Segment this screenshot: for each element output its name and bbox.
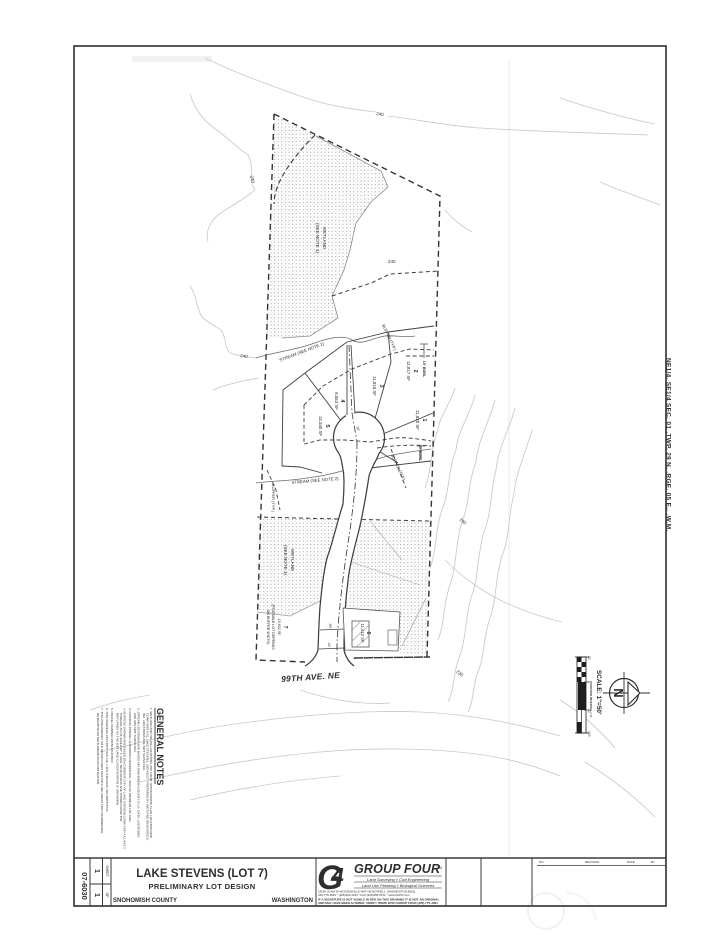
svg-text:ARE ARE NOT SURVEYED.: ARE ARE NOT SURVEYED. [133,713,137,753]
svg-text:50': 50' [328,624,332,629]
svg-text:5: 5 [324,424,330,427]
svg-text:(POSSIBLE LOT DEPENDS: (POSSIBLE LOT DEPENDS [271,604,275,650]
svg-text:7: 7 [282,626,288,629]
svg-text:WETLAND: WETLAND [322,227,327,250]
svg-text:SHEET: SHEET [105,865,109,876]
svg-text:6. SITE ADDRESS 2424 99TH AV: 6. SITE ADDRESS 2424 99TH AVE. NE, LAKE … [105,708,109,812]
svg-text:24': 24' [327,643,331,648]
svg-text:14,340 SF: 14,340 SF [318,416,323,437]
svg-text:1: 1 [421,418,427,421]
svg-text:N: N [611,688,626,697]
svg-text:4: 4 [330,863,344,889]
svg-text:1: 1 [93,869,100,873]
svg-text:(SEE NOTE 1): (SEE NOTE 1) [315,223,320,254]
svg-text:Land Use Planning ◊ Biol: Land Use Planning ◊ Biological Sciences [362,883,434,888]
svg-text:425-775-4581 * (206)362-4244: 425-775-4581 * (206)362-4244 * FAX:(206)… [318,893,410,897]
svg-text:OF: OF [105,893,109,898]
svg-text:2: 2 [412,369,418,372]
svg-text:5. PARCEL NUMBER 28050300403: 5. PARCEL NUMBER 28050300403500 [110,708,114,763]
svg-text:240: 240 [388,259,396,264]
svg-text:AND MAY HAVE BEEN ALTERED. VER: AND MAY HAVE BEEN ALTERED. VERIFY ITEMS … [318,901,438,905]
svg-text:3: 3 [378,384,384,387]
svg-text:GROUP FOUR: GROUP FOUR [354,862,440,876]
svg-text:PRELIMINARY LOT DESIGN: PRELIMINARY LOT DESIGN [148,882,255,891]
svg-text:11,820 SF: 11,820 SF [415,410,420,430]
svg-text:WETLANDS AS THE WETLAND CLASSI: WETLANDS AS THE WETLAND CLASSIFICATION I… [115,713,119,806]
svg-text:10' BDBL: 10' BDBL [418,445,422,462]
svg-text:SCALE: 1"=50': SCALE: 1"=50' [595,670,602,715]
svg-text:TM: TM [437,866,442,870]
svg-text:8,553 SF: 8,553 SF [334,392,339,410]
svg-text:SNOHOMISH COUNTY: SNOHOMISH COUNTY [113,898,177,904]
svg-text:WETLAND: WETLAND [290,549,295,572]
svg-text:WASHINGTON: WASHINGTON [272,898,313,904]
svg-text:BUFFER (TYP.): BUFFER (TYP.) [271,484,276,513]
svg-text:CONTOUR INTERVAL = 2': CONTOUR INTERVAL = 2' [589,681,593,718]
svg-text:GENERAL NOTES: GENERAL NOTES [155,708,165,785]
svg-text:11,412 SF: 11,412 SF [360,623,365,642]
svg-text:BY: BY [651,860,655,864]
svg-text:INC. LOCATIONS ARE NOT SURVEY: INC. LOCATIONS ARE NOT SURVEYED. [142,713,146,771]
svg-text:ON BUFFER WIDTH): ON BUFFER WIDTH) [266,610,270,645]
svg-text:50: 50 [587,656,591,660]
svg-text:DETENTION OR WETLAND/BUFFER MI: DETENTION OR WETLAND/BUFFER MITIGATION. [96,713,100,785]
svg-text:11,817 SF: 11,817 SF [406,361,411,381]
svg-text:10' BDBL: 10' BDBL [422,361,426,378]
svg-text:1: 1 [93,893,100,897]
svg-text:15,632 SF: 15,632 SF [277,619,281,636]
svg-text:DATE: DATE [627,860,635,864]
svg-text:Land Surveying ◊ Civil E: Land Surveying ◊ Civil Engineering [367,877,430,882]
svg-text:100: 100 [587,731,591,737]
svg-text:NO.: NO. [539,860,545,864]
svg-text:LAKE STEVENS (LOT 7): LAKE STEVENS (LOT 7) [136,868,268,880]
svg-text:11,815 SF: 11,815 SF [372,376,377,396]
svg-text:(SEE NOTE 1): (SEE NOTE 1) [283,545,288,576]
svg-text:3. EXISTING ZONING: SUBURBAN: 3. EXISTING ZONING: SUBURBAN RESIDENTIAL… [128,708,132,823]
svg-text:REVISION: REVISION [585,860,599,864]
svg-text:07-6030: 07-6030 [80,872,89,900]
